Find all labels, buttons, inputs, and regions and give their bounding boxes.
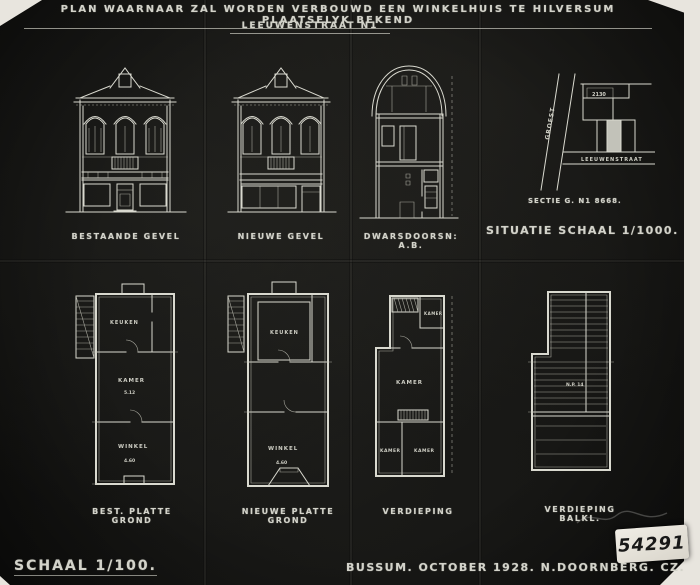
fold-crease-horizontal	[0, 259, 700, 263]
plan3-room-middle: KAMER	[396, 380, 423, 386]
plan2-room-winkel: WINKEL	[268, 446, 298, 452]
verdieping-balklaag-drawing: N.P. 14	[522, 278, 634, 478]
plan3-room-top-right: KAMER	[424, 311, 443, 316]
dwarsdoorsnede-drawing	[356, 56, 462, 224]
plan1-room-winkel: WINKEL	[118, 444, 148, 450]
fold-crease-vertical-2	[349, 0, 353, 585]
street-name-leeuwenstraat: LEEUWENSTRAAT	[581, 157, 643, 163]
plan2-room-keuken: KEUKEN	[270, 330, 299, 336]
plan3-label: VERDIEPING	[372, 507, 464, 516]
plan1-winkel-dim: 4.60	[124, 458, 135, 464]
parcel-number: 2130	[592, 92, 606, 98]
street-name-groest: GROEST	[544, 106, 557, 140]
paper-corner-top-right	[648, 0, 688, 14]
situatie-map-drawing: GROEST 2130 LEEUWENSTRAAT	[503, 68, 655, 196]
verdieping-drawing: KAMER KAMER KAMER KAMER	[360, 282, 462, 486]
scale-note: SCHAAL 1/100.	[14, 558, 157, 576]
bestaande-gevel-label: BESTAANDE GEVEL	[62, 232, 190, 241]
plan4-note: N.P. 14	[566, 382, 584, 388]
sectie-note: SECTIE G. N1 8668.	[528, 197, 622, 205]
plan3-room-bottom-right: KAMER	[414, 448, 435, 454]
plan1-room-kamer: KAMER	[118, 378, 145, 384]
nieuwe-gevel-drawing	[226, 62, 338, 220]
plan1-kamer-dim: 5.12	[124, 390, 135, 396]
blueprint-photo: PLAN WAARNAAR ZAL WORDEN VERBOUWD EEN WI…	[0, 0, 700, 585]
scan-edge-right	[684, 0, 700, 585]
bestaande-gevel-drawing	[62, 62, 190, 220]
plan1-room-keuken: KEUKEN	[110, 320, 139, 326]
credit-note: BUSSUM. OCTOBER 1928. N.DOORNBERG. CZ.	[346, 561, 685, 574]
archive-number-sticker: 54291	[615, 525, 689, 564]
plan2-label: NIEUWE PLATTE GROND	[224, 507, 352, 525]
plan2-winkel-dim: 4.60	[276, 460, 287, 466]
nieuwe-gevel-label: NIEUWE GEVEL	[222, 232, 340, 241]
plan1-label: BEST. PLATTE GROND	[72, 507, 192, 525]
fold-crease-vertical-3	[478, 0, 482, 585]
nieuwe-platte-grond-drawing: KEUKEN WINKEL 4.60	[224, 280, 346, 496]
archive-number: 54291	[618, 532, 687, 557]
best-platte-grond-drawing: KEUKEN KAMER 5.12 WINKEL 4.60	[70, 282, 194, 496]
dwarsdoorsnede-label: DWARSDOORSN: A.B.	[358, 232, 464, 250]
sheet-subtitle: LEEUWENSTRAAT N1	[230, 21, 390, 34]
situatie-label: SITUATIE SCHAAL 1/1000.	[486, 224, 679, 237]
plan3-room-bottom-left: KAMER	[380, 448, 401, 454]
paper-corner-bottom-left	[0, 576, 10, 585]
fold-crease-vertical-1	[203, 0, 207, 585]
